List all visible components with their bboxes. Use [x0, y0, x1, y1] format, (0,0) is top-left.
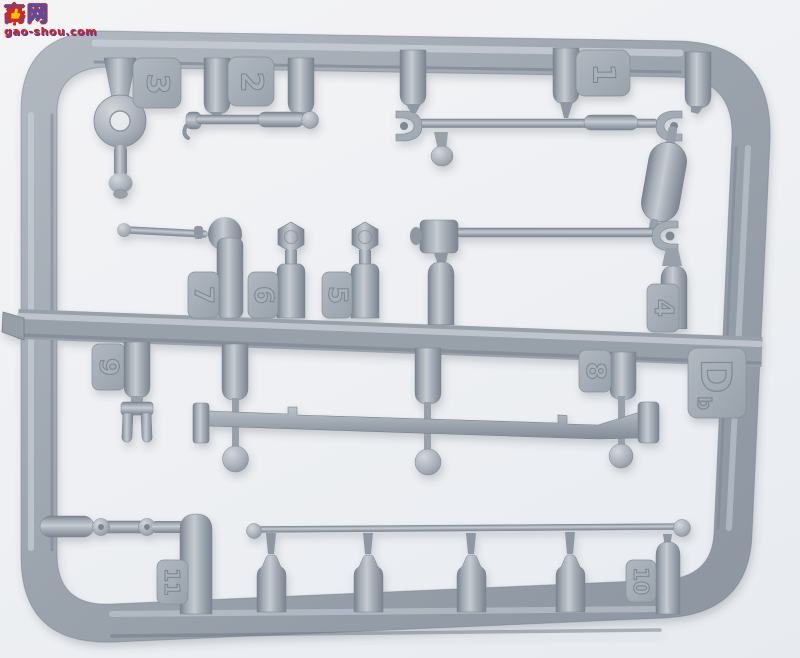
stub: [40, 516, 94, 537]
neck: [359, 250, 371, 266]
beam-end-plate: [193, 403, 209, 443]
ball-foot: [415, 449, 441, 475]
sprue-drawing: 3 2: [0, 0, 800, 658]
neck: [285, 250, 297, 266]
part-4-linkage-rod: [410, 220, 687, 329]
gate-post: [553, 48, 579, 104]
gate-post: [415, 348, 441, 404]
sprue-photo: 3 2: [0, 0, 800, 658]
tag-number-6: 6: [248, 286, 278, 304]
runner-support-posts: [222, 344, 636, 475]
gate-bottle: [257, 555, 286, 612]
watermark-char-right: 网: [27, 4, 48, 25]
tag-number-11: 11: [160, 568, 184, 596]
hex-head: [278, 222, 304, 252]
part-tag-11: 11: [157, 560, 188, 604]
gate: [560, 102, 573, 118]
part-tag-8: 8: [579, 350, 611, 392]
cavity-mark: b: [693, 396, 715, 410]
ball-end-right: [674, 520, 691, 537]
gate-bottle: [457, 555, 486, 612]
boss-pin: [144, 524, 150, 530]
tag-number-1: 1: [586, 64, 621, 85]
end-pin: [410, 227, 422, 245]
hex-head: [352, 222, 378, 252]
collar: [194, 226, 203, 239]
part-tag-4: 4: [647, 284, 679, 332]
part-tag-2: 2: [228, 57, 274, 106]
gear-thumb-icon: [4, 4, 26, 26]
part-6-valve-bottle: [277, 222, 305, 318]
gate-bottle: [354, 555, 383, 612]
part-tag-5: 5: [322, 272, 352, 318]
body: [277, 264, 305, 318]
gate-post: [400, 50, 426, 106]
part-tag-7: 7: [188, 272, 219, 318]
rod-thick-section: [258, 112, 304, 127]
clevis-pin: [666, 232, 675, 241]
ball-end-left: [247, 524, 262, 539]
lever-arm: [217, 238, 243, 318]
tag-number-9: 9: [93, 358, 123, 376]
ring-hole: [110, 111, 130, 131]
teardrop-ball: [431, 146, 453, 166]
link-connector: [152, 521, 184, 533]
rod: [456, 228, 654, 237]
part-tag-6: 6: [248, 272, 278, 318]
gate: [565, 532, 575, 554]
foot-disc: [114, 190, 128, 199]
end-post: [656, 542, 680, 614]
tag-number-8: 8: [580, 362, 610, 380]
body: [351, 264, 379, 318]
gate: [266, 533, 276, 554]
beam-end-bracket: [638, 402, 659, 443]
stem: [114, 145, 127, 177]
gate: [363, 533, 373, 554]
gate-post: [685, 52, 711, 108]
sprue-letter: D: [692, 359, 741, 394]
ball-end: [302, 112, 319, 129]
gate-post: [124, 342, 150, 398]
rod: [254, 524, 682, 533]
tag-number-5: 5: [322, 286, 352, 304]
part-5-valve-bottle: [351, 222, 379, 318]
part-tag-1: 1: [576, 50, 630, 96]
clevis-left: [396, 111, 422, 141]
part-tag-10: 10: [626, 560, 656, 602]
end-block: [420, 220, 458, 253]
watermark: 高 网 gao-shou.com: [4, 4, 97, 37]
sprue-letter-tag: D b: [688, 348, 746, 418]
part-7-lever: [117, 217, 243, 318]
fork-prong-left: [122, 413, 133, 442]
gate: [691, 106, 704, 114]
part-9-fork: [121, 342, 153, 442]
ball-foot: [609, 444, 633, 468]
gate-bottle: [556, 555, 585, 612]
ball-foot: [223, 446, 249, 472]
watermark-domain: gao-shou.com: [4, 26, 97, 37]
lever-ball-end: [117, 223, 131, 237]
support-post: [428, 262, 454, 325]
gate-post: [288, 58, 314, 114]
tag-number-2: 2: [234, 72, 269, 93]
watermark-logo-row: 高 网: [4, 4, 97, 25]
tag-number-10: 10: [629, 567, 653, 595]
boss-pin: [98, 524, 104, 530]
gate-post: [204, 58, 230, 114]
part-tag-3: 3: [133, 58, 181, 108]
capsule-body: [638, 139, 689, 224]
clevis-pin: [400, 122, 408, 130]
gate: [434, 253, 448, 262]
part-tag-9: 9: [92, 344, 125, 390]
rod-thick-section: [584, 115, 638, 130]
tag-number-4: 4: [648, 299, 678, 317]
fork-prong-right: [141, 413, 152, 442]
tag-number-3: 3: [140, 74, 175, 95]
gate-post: [610, 352, 636, 400]
tag-number-7: 7: [188, 286, 218, 304]
gate: [104, 58, 136, 98]
sprue: 3 2: [2, 31, 770, 642]
gate: [466, 533, 476, 554]
gate-post: [222, 344, 248, 400]
